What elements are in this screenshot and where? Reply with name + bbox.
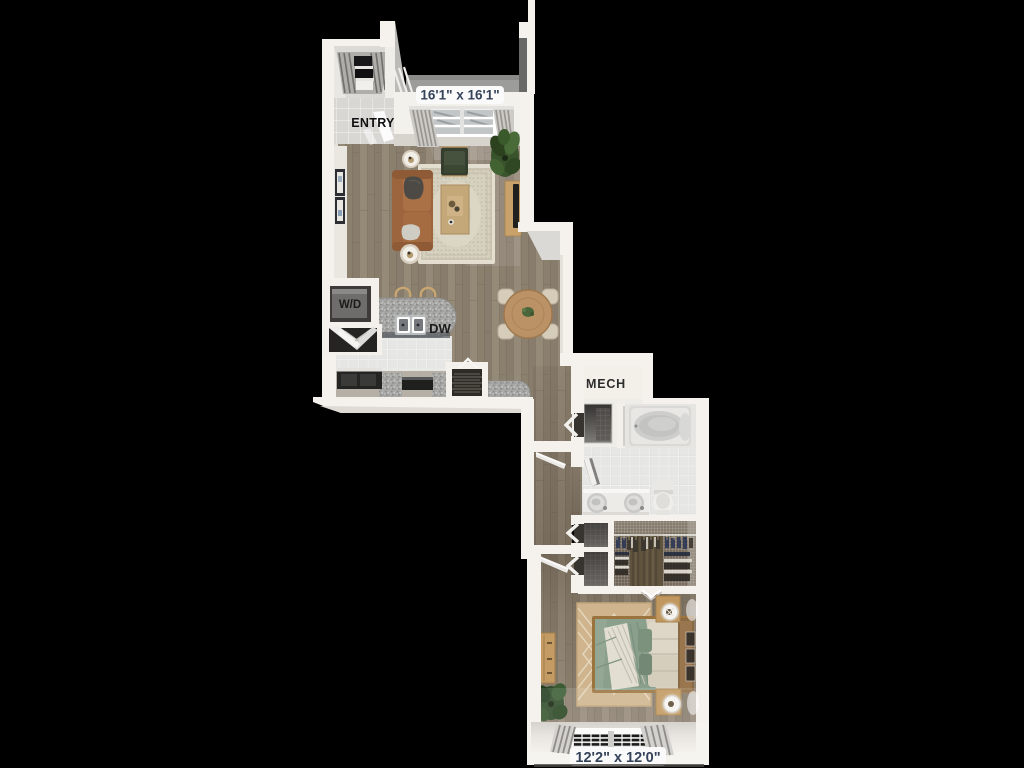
svg-text:16'1" x 16'1": 16'1" x 16'1" — [420, 88, 499, 103]
svg-text:MECH: MECH — [586, 377, 626, 391]
svg-text:W/D: W/D — [339, 299, 361, 311]
svg-text:DW: DW — [429, 321, 451, 336]
svg-text:12'2" x 12'0": 12'2" x 12'0" — [575, 750, 660, 766]
svg-text:ENTRY: ENTRY — [351, 116, 395, 130]
